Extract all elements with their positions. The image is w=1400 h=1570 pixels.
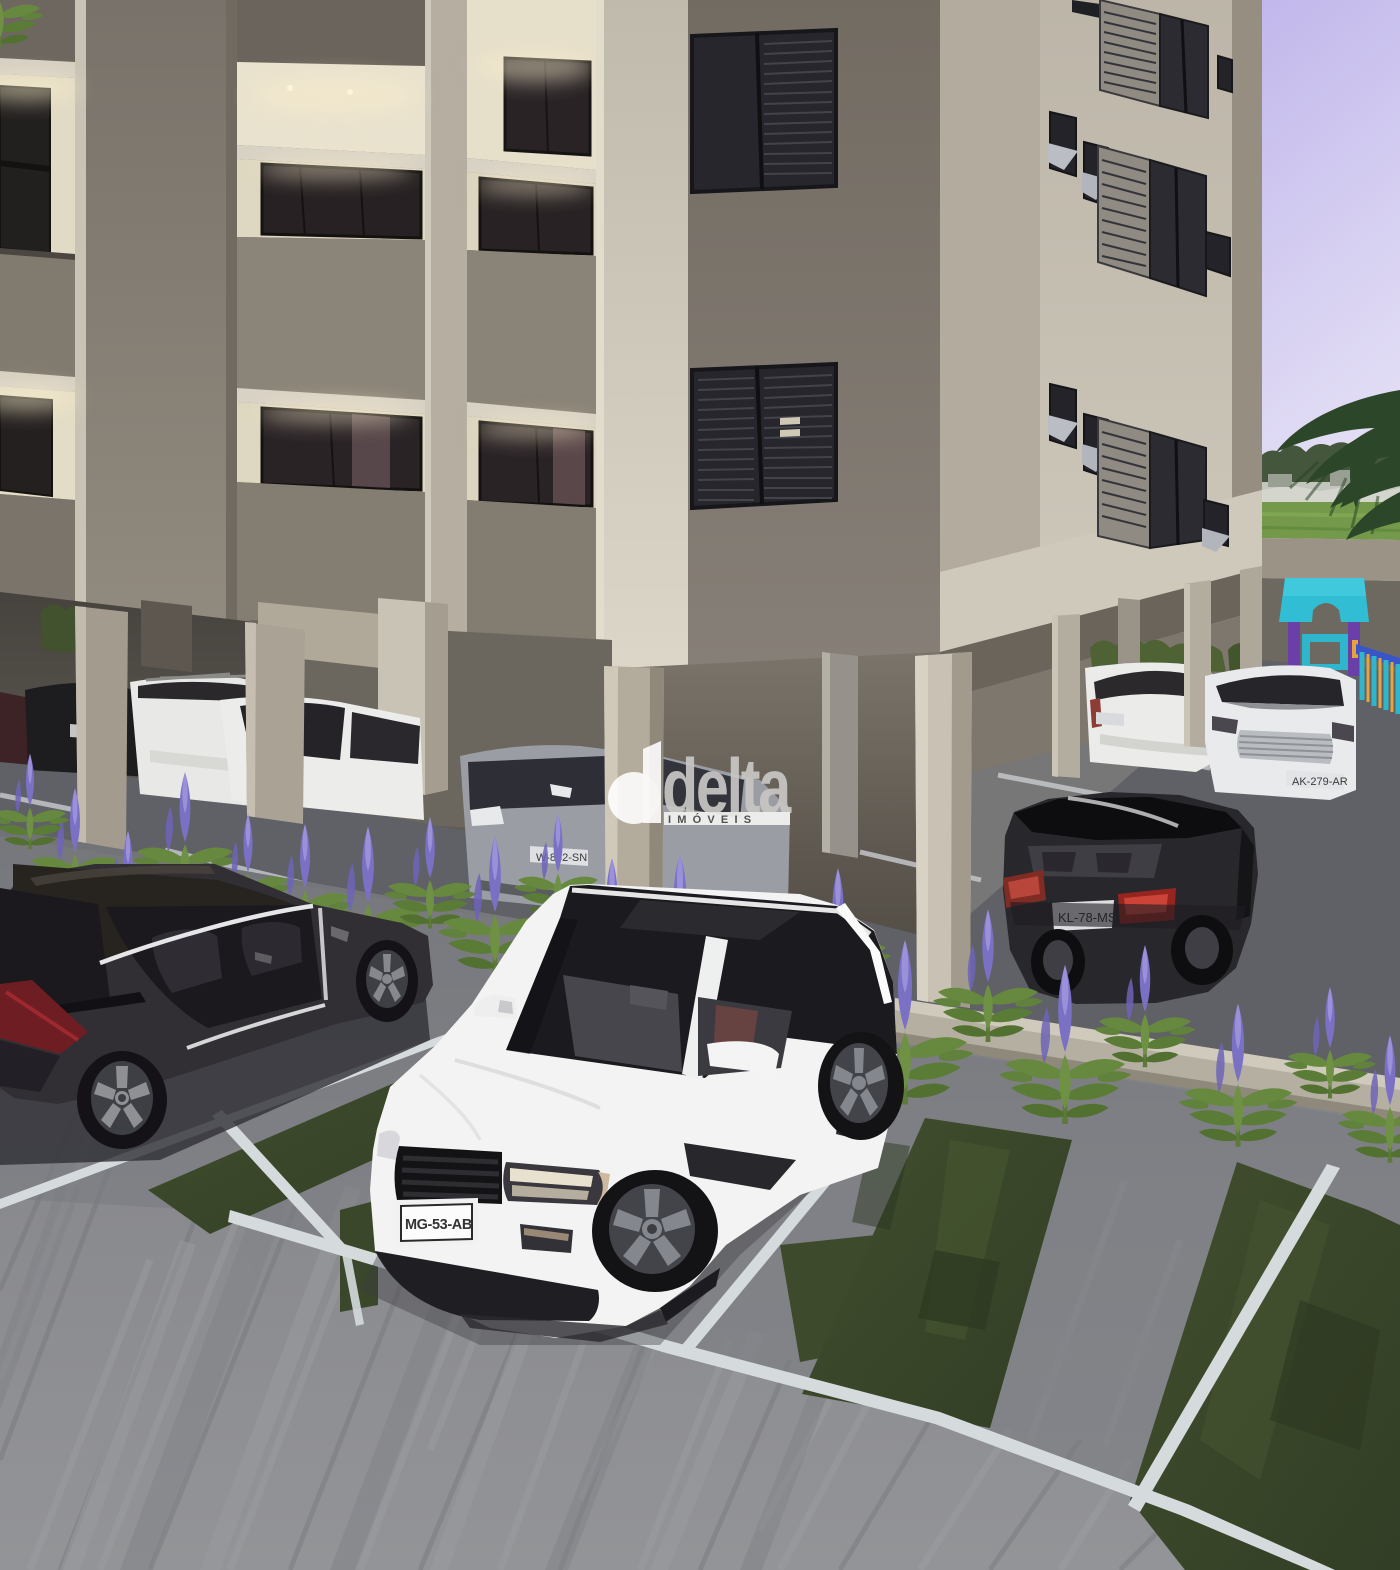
- svg-text:AK-279-AR: AK-279-AR: [1292, 776, 1348, 788]
- svg-text:IMÓVEIS: IMÓVEIS: [668, 813, 757, 826]
- svg-text:MG-53-AB: MG-53-AB: [405, 1217, 472, 1233]
